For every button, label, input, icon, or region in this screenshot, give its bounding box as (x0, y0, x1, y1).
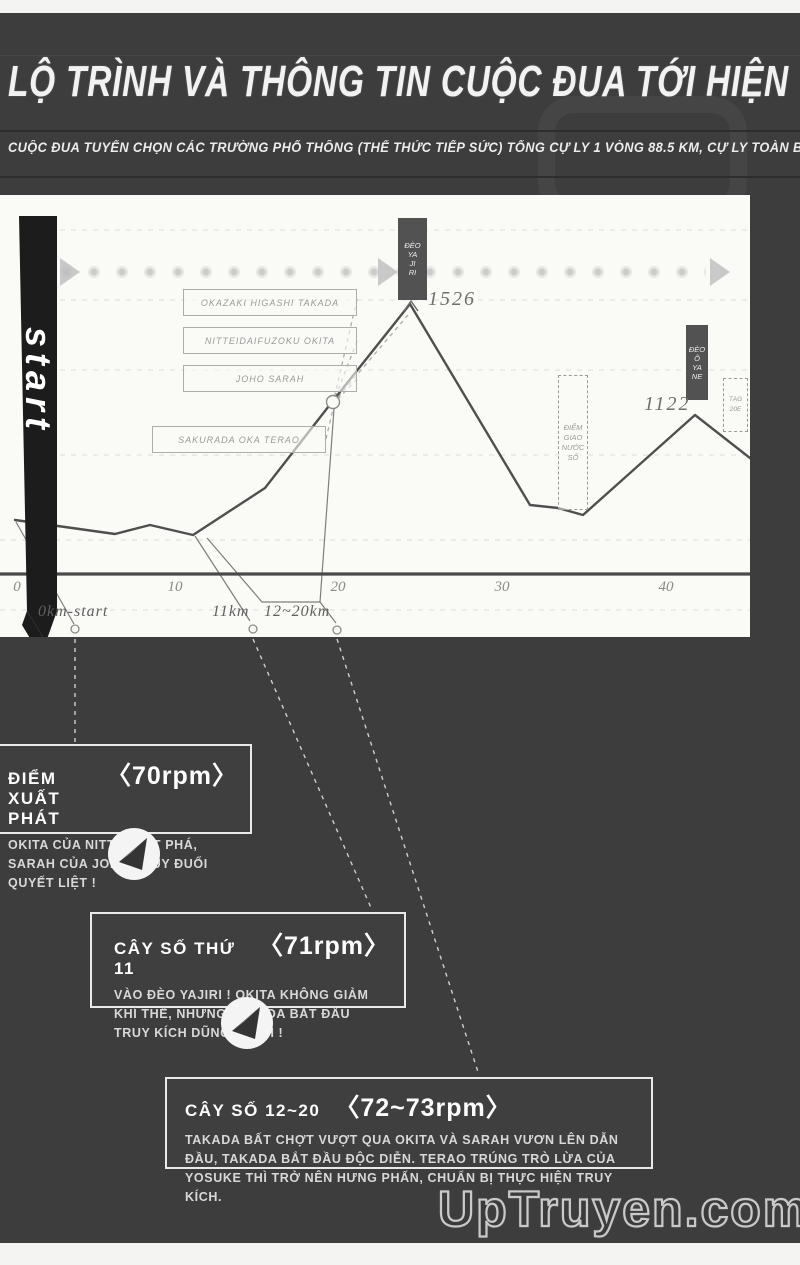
runner-label-terao: SAKURADA OKA TERAO (152, 426, 326, 453)
handoff-point-marker (327, 396, 340, 409)
side-marker-line: 20E (730, 405, 742, 415)
callout-start: ĐIỂM XUẤT PHÁT 〈70rpm〉 OKITA CỦA NITTEI … (0, 744, 252, 834)
runner-label-text: NITTEIDAIFUZOKU OKITA (205, 336, 335, 346)
peak-elevation-1526: 1526 (428, 288, 476, 311)
callout-title: CÂY SỐ THỨ 11 (114, 939, 244, 979)
divider (0, 130, 800, 132)
pass-banner-line: ĐÈO (689, 345, 705, 354)
station-line: ĐIỂM (564, 423, 583, 433)
divider (0, 55, 800, 56)
pointer-triangle-icon (106, 826, 162, 882)
callout-km11: CÂY SỐ THỨ 11 〈71rpm〉 VÀO ĐÈO YAJIRI ! O… (90, 912, 406, 1008)
station-line: GIAO (564, 433, 583, 443)
divider (0, 176, 800, 178)
x-tick-20: 20 (321, 579, 355, 596)
flow-arrow-icon (710, 258, 730, 286)
flow-arrow-icon (378, 258, 398, 286)
milestone-11km: 11km (212, 603, 249, 621)
elevation-chart-panel: start OKAZAKI HIGASHI TAKADA NITTEIDAIFU… (0, 195, 750, 637)
page-subtitle: CUỘC ĐUA TUYỂN CHỌN CÁC TRƯỜNG PHỔ THÔNG… (8, 140, 800, 155)
pass-banner-yajiri: ĐÈO YA JI RI (398, 218, 427, 300)
pass-banner-line: ĐÈO (404, 241, 420, 250)
water-station-box: ĐIỂM GIAO NƯỚC SỐ (558, 375, 588, 510)
milestone-0km: 0km-start (38, 603, 108, 621)
runner-label-text: SAKURADA OKA TERAO (178, 435, 300, 445)
pass-banner-oyane: ĐÈO Ô YA NE (686, 325, 708, 400)
pass-banner-line: NE (692, 372, 702, 381)
peak-elevation-1122: 1122 (644, 393, 691, 416)
runner-label-takada: OKAZAKI HIGASHI TAKADA (183, 289, 357, 316)
runner-label-sarah: JOHO SARAH (183, 365, 357, 392)
pass-banner-line: Ô (694, 354, 700, 363)
callout-title: ĐIỂM XUẤT PHÁT (8, 769, 92, 829)
page-top-margin (0, 0, 800, 13)
start-ribbon-label: start (17, 311, 59, 451)
gridlines (0, 230, 750, 610)
watermark: UpTruyen.com (438, 1180, 800, 1238)
runner-label-text: OKAZAKI HIGASHI TAKADA (201, 298, 339, 308)
station-line: NƯỚC (562, 443, 585, 453)
page-bottom-margin (0, 1243, 800, 1265)
callout-rpm: 〈70rpm〉 (106, 756, 238, 792)
callout-rpm: 〈71rpm〉 (258, 926, 390, 962)
elevation-chart-svg (0, 195, 750, 637)
x-tick-0: 0 (0, 579, 34, 596)
x-tick-30: 30 (485, 579, 519, 596)
pass-banner-line: RI (409, 268, 417, 277)
callout-rpm: 〈72~73rpm〉 (334, 1088, 511, 1124)
runner-label-text: JOHO SARAH (236, 374, 305, 384)
callout-km12-20: CÂY SỐ 12~20 〈72~73rpm〉 TAKADA BẤT CHỢT … (165, 1077, 653, 1169)
page-title: LỘ TRÌNH VÀ THÔNG TIN CUỘC ĐUA TỚI HIỆN … (8, 57, 800, 107)
manga-page: LỘ TRÌNH VÀ THÔNG TIN CUỘC ĐUA TỚI HIỆN … (0, 0, 800, 1265)
milestone-12-20: 12~20km (264, 603, 330, 621)
pass-banner-line: YA (408, 250, 418, 259)
milestone-markers (71, 625, 341, 634)
station-line: SỐ (568, 453, 579, 463)
side-marker-box: TẠG 20E (723, 378, 748, 432)
callout-title: CÂY SỐ 12~20 (185, 1101, 320, 1121)
x-tick-40: 40 (649, 579, 683, 596)
elevation-profile-line (15, 304, 750, 535)
runner-label-okita: NITTEIDAIFUZOKU OKITA (183, 327, 357, 354)
x-tick-10: 10 (158, 579, 192, 596)
pass-banner-line: JI (410, 259, 416, 268)
side-marker-line: TẠG (729, 395, 742, 405)
pass-banner-line: YA (692, 363, 702, 372)
pointer-triangle-icon (219, 995, 275, 1051)
